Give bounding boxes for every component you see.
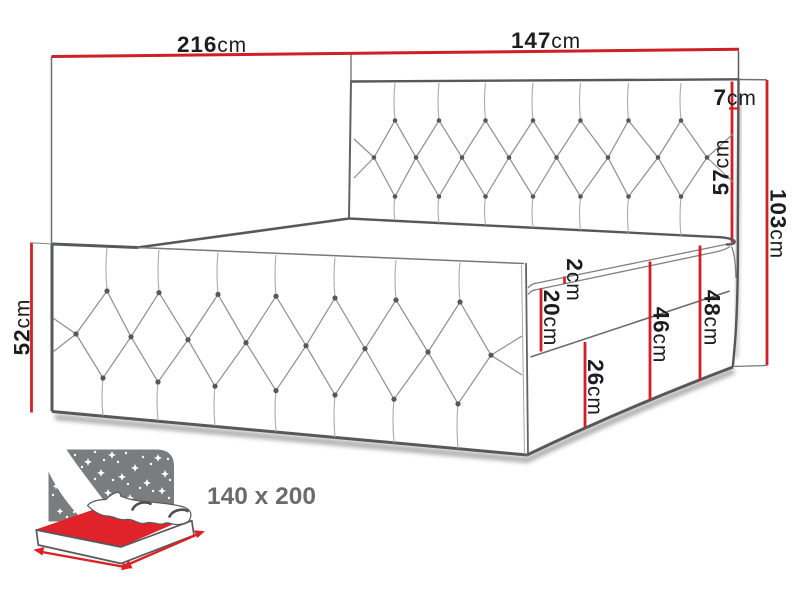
svg-text:48cm: 48cm — [700, 290, 725, 347]
svg-text:147cm: 147cm — [511, 28, 581, 53]
svg-text:216cm: 216cm — [177, 32, 247, 57]
svg-text:52cm: 52cm — [10, 299, 35, 356]
svg-text:140 x 200: 140 x 200 — [207, 483, 316, 510]
svg-text:20cm: 20cm — [539, 290, 564, 347]
svg-text:7cm: 7cm — [714, 85, 757, 110]
svg-text:26cm: 26cm — [583, 359, 608, 416]
svg-text:57cm: 57cm — [709, 139, 734, 196]
svg-text:2cm: 2cm — [562, 258, 587, 301]
svg-text:46cm: 46cm — [649, 307, 674, 364]
svg-text:103cm: 103cm — [766, 189, 791, 259]
